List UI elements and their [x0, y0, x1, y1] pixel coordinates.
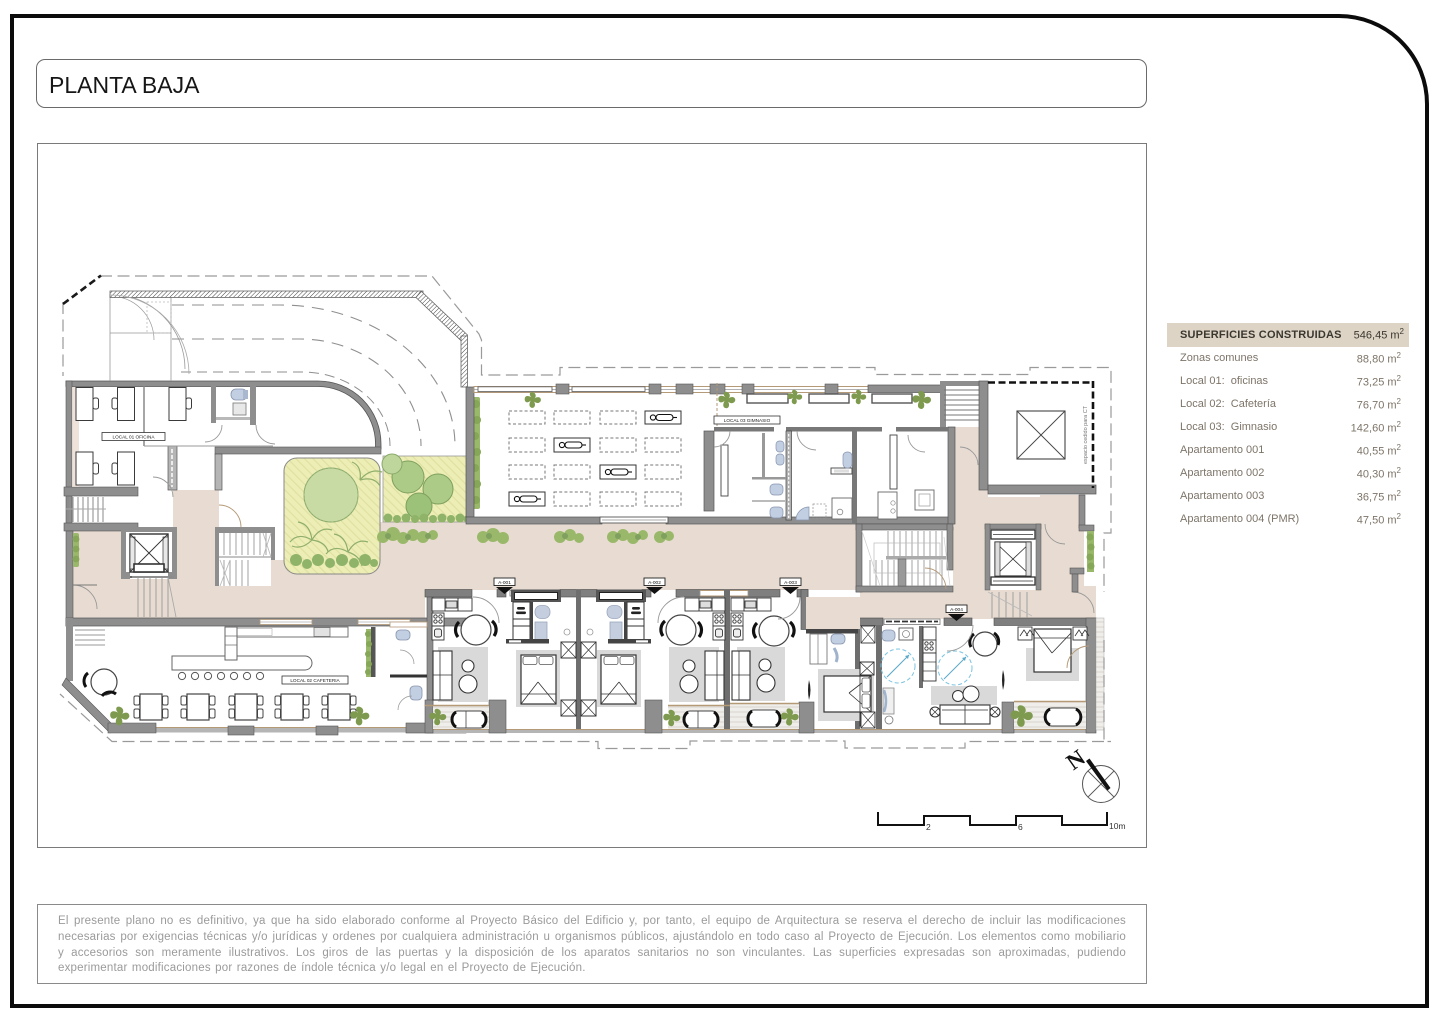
svg-text:LOCAL 02 CAFETERIA: LOCAL 02 CAFETERIA — [290, 678, 340, 683]
svg-text:10m: 10m — [1109, 821, 1126, 831]
svg-text:2: 2 — [926, 822, 931, 832]
svg-text:A-001: A-001 — [498, 580, 511, 586]
svg-text:A-003: A-003 — [784, 580, 797, 586]
svg-text:LOCAL 01 OFICINA: LOCAL 01 OFICINA — [112, 435, 155, 440]
svg-text:LOCAL 03 GIMNASIO: LOCAL 03 GIMNASIO — [724, 418, 771, 423]
svg-text:A-002: A-002 — [648, 580, 661, 586]
svg-text:N: N — [1062, 745, 1090, 775]
svg-text:espacio cedido para CT: espacio cedido para CT — [1083, 405, 1089, 464]
svg-text:6: 6 — [1018, 822, 1023, 832]
svg-text:A-004: A-004 — [950, 607, 963, 613]
